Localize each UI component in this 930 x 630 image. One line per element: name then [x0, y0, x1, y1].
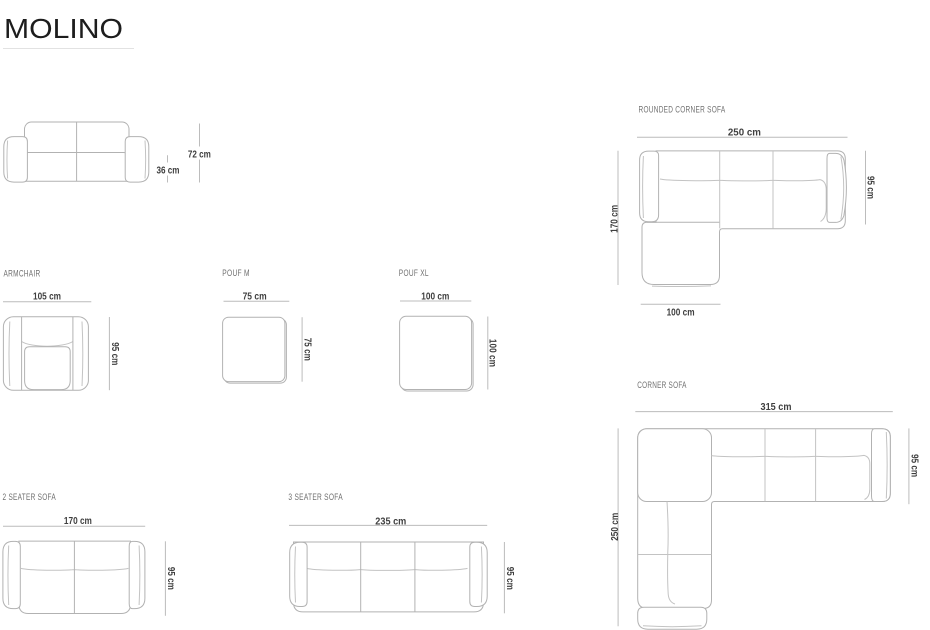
svg-text:95 cm: 95 cm	[165, 567, 176, 590]
svg-text:315 cm: 315 cm	[761, 402, 792, 413]
svg-text:250 cm: 250 cm	[728, 127, 761, 138]
svg-text:75 cm: 75 cm	[302, 338, 313, 361]
svg-text:105 cm: 105 cm	[33, 292, 61, 303]
svg-text:POUF XL: POUF XL	[399, 268, 429, 279]
svg-text:95 cm: 95 cm	[909, 454, 920, 477]
svg-text:POUF M: POUF M	[222, 268, 250, 279]
svg-text:235 cm: 235 cm	[375, 516, 406, 527]
svg-text:75 cm: 75 cm	[243, 292, 267, 303]
svg-text:100 cm: 100 cm	[421, 292, 449, 303]
svg-text:CORNER SOFA: CORNER SOFA	[637, 380, 687, 391]
svg-text:2 SEATER SOFA: 2 SEATER SOFA	[3, 492, 57, 503]
svg-text:170 cm: 170 cm	[64, 516, 92, 527]
svg-text:3 SEATER SOFA: 3 SEATER SOFA	[288, 492, 343, 503]
svg-text:72 cm: 72 cm	[188, 150, 211, 161]
svg-text:250 cm: 250 cm	[610, 513, 621, 541]
svg-text:36 cm: 36 cm	[157, 165, 180, 176]
svg-text:95 cm: 95 cm	[504, 567, 515, 590]
svg-text:100 cm: 100 cm	[667, 307, 695, 318]
svg-text:MOLINO: MOLINO	[4, 13, 123, 44]
svg-text:95 cm: 95 cm	[109, 342, 120, 365]
svg-text:ARMCHAIR: ARMCHAIR	[4, 269, 41, 280]
svg-text:100 cm: 100 cm	[487, 339, 498, 367]
svg-text:ROUNDED CORNER SOFA: ROUNDED CORNER SOFA	[639, 104, 726, 115]
svg-text:170 cm: 170 cm	[609, 205, 620, 233]
svg-text:95 cm: 95 cm	[865, 176, 876, 199]
